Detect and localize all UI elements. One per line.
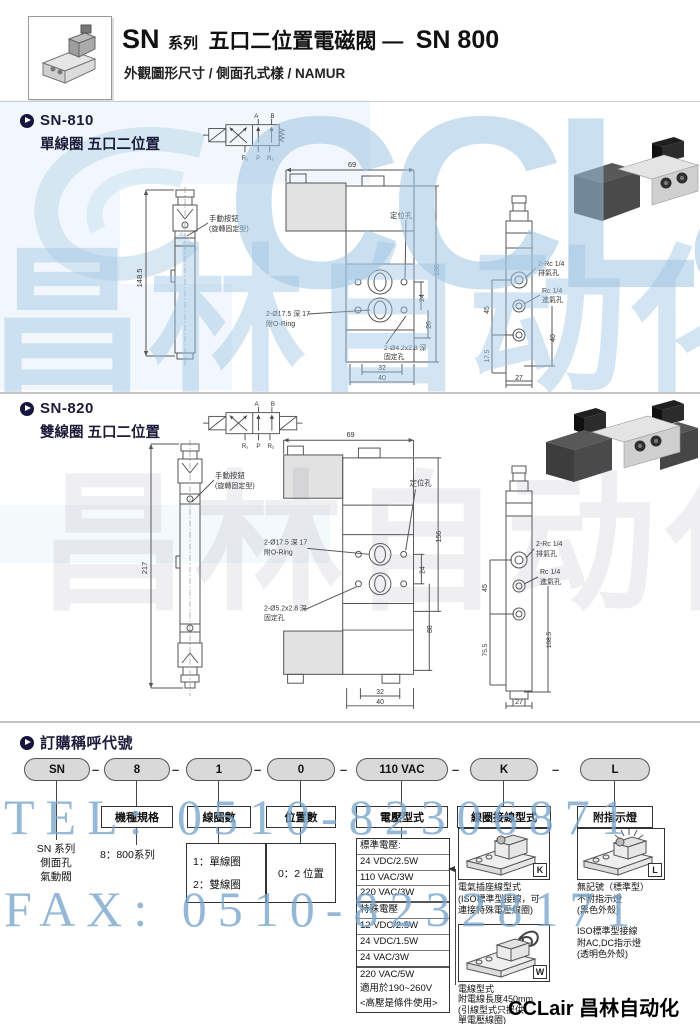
code-pill-voltage: 110 VAC [356,758,448,781]
intake-port-label2: 進氣孔 [540,577,561,586]
title-model: SN 800 [416,26,499,54]
port-r1-label: R₁ [242,155,249,162]
code-dash: – [452,762,459,777]
oring-label: 2-Ø17.5 深 17 [264,537,307,546]
indicator-l-caption1: 無記號（標準型） 不附指示燈 (黑色外殼) [577,882,673,917]
connector-line [56,779,57,840]
code-pill-coils: 1 [186,758,252,781]
coil-option: 2：雙線圈 [193,877,259,892]
col-header-coils: 線圈數 [187,806,251,828]
wiring-k-tag: K [533,863,547,877]
voltage-row: 24 VDC/2.5W [357,855,449,871]
code-dash: – [92,762,99,777]
voltage-row: 110 VAC/3W [357,871,449,887]
connector-line [401,779,402,806]
manual-button-label2: (旋轉固定型) [209,224,249,233]
sn820-heading: SN-820 [20,400,94,417]
sn810-side-dimension-drawing: 69 24 26 136 32 40 定位孔 2-Ø17.5 深 17 附O-R… [266,158,441,388]
code-pill-positions: 0 [267,758,335,781]
indicator-l-caption-line: (黑色外殼) [577,905,673,917]
sn810-desc: 單線圈 五口二位置 [40,133,160,154]
code-pill-light: L [580,758,650,781]
section-bullet-icon [20,736,34,750]
page-subtitle: 外觀圖形尺寸 / 側面孔式樣 / NAMUR [124,62,345,82]
connector-line [300,779,301,806]
voltage-options-box: 標準電壓: 24 VDC/2.5W 110 VAC/3W 220 VAC/3W … [356,838,450,1013]
indicator-l-image-box: L [577,828,665,880]
code-dash: – [552,762,559,777]
title-series-word: 系列 [168,35,198,52]
indicator-l-tag: L [648,863,662,877]
catalog-page: SN 系列 五口二位置電磁閥 — SN 800 外觀圖形尺寸 / 側面孔式樣 /… [0,0,700,1024]
connector-line [300,826,301,843]
code-dash: – [340,762,347,777]
code-pill-series: 8 [104,758,170,781]
wiring-k-image-box: K [458,828,550,880]
divider [0,101,700,102]
connector-line [218,779,219,806]
wiring-w-image-box: W [458,924,550,982]
sn820-product-photo [540,396,700,496]
voltage-row: <高壓是條件使用> [357,997,449,1012]
indicator-l-caption-line: 附AC,DC指示燈 [577,938,673,950]
port-a-label: A [254,113,259,120]
code-pill-wiring: K [470,758,538,781]
voltage-row: 24 VDC/1.5W [357,935,449,951]
indicator-l-caption-line: 不附指示燈 [577,894,673,906]
connector-line [614,779,615,806]
fixing-hole-label2: 固定孔 [384,352,405,361]
fixing-hole-label: 2-Ø4.2x2.8 深 [384,343,427,352]
indicator-l-caption-line: 無記號（標準型） [577,882,673,894]
dim-height: 217 [140,562,149,575]
spec-option-note: 8：800系列 [100,847,155,862]
dim-45: 45 [482,584,489,592]
ordering-heading-text: 訂購稱呼代號 [40,732,133,753]
connector-line [455,869,456,985]
dim-24: 24 [419,294,426,302]
exhaust-port-label: 2-Rc 1/4 [536,541,563,548]
dim-27: 27 [515,375,523,382]
dim-88: 88 [427,625,434,633]
section-bullet-icon [20,402,34,416]
dim-40: 40 [550,334,557,342]
divider [0,721,700,723]
intake-port-label: Rc 1/4 [542,288,562,295]
dim-26: 26 [426,321,433,329]
exhaust-port-label2: 排氣孔 [536,549,557,558]
indicator-l-caption-line: (透明色外殼) [577,949,673,961]
voltage-row: 220 VAC/3W [357,886,449,903]
title-series-code: SN [122,24,160,54]
dim-40: 40 [376,699,384,706]
sn820-model: SN-820 [40,400,94,417]
voltage-row: 標準電壓: [357,839,449,855]
voltage-row: 特殊電壓 [357,903,449,919]
port-a-label: A [254,401,259,408]
position-option: 0：2 位置 [278,866,324,881]
divider [0,392,700,394]
dim-27: 27 [515,699,523,706]
wiring-k-caption-line: 連接特殊電壓線圈) [458,905,558,917]
sn-series-note: SN 系列 側面孔 氣動閥 [18,842,94,885]
sn-series-note-line: SN 系列 [18,842,94,856]
dim-height: 148.5 [135,269,144,288]
dim-32: 32 [378,365,386,372]
intake-port-label2: 進氣孔 [542,295,563,304]
manual-button-label: 手動按鈕 [215,470,245,480]
connector-line [136,779,137,806]
voltage-row: 適用於190~260V [357,982,449,997]
sn-series-note-line: 氣動閥 [18,870,94,884]
wiring-k-caption: 電氣插座線型式 (ISO標準型接線，可 連接特殊電壓線圈) [458,882,558,917]
code-dash: – [254,762,261,777]
sn820-side-dimension-drawing: 69 24 88 156 32 40 定位孔 2-Ø17.5 深 17 附O-R… [264,426,446,721]
exhaust-port-label: 2-Rc 1/4 [538,261,565,268]
voltage-row: 24 VAC/3W [357,951,449,968]
connector-line [136,826,137,845]
manual-button-label: 手動按鈕 [209,213,239,223]
code-pill-sn: SN [24,758,90,781]
wiring-k-caption-line: 電氣插座線型式 [458,882,558,894]
sn810-front-view-drawing: 148.5 手動按鈕 (旋轉固定型) [130,186,265,376]
sn820-port-view-drawing: 2-Rc 1/4 排氣孔 Rc 1/4 進氣孔 45 75.5 108.5 27 [468,460,593,712]
manual-button-label2: (旋轉固定型) [215,481,255,490]
dim-136: 136 [434,264,441,276]
dim-45: 45 [484,306,491,314]
page-title: SN 系列 五口二位置電磁閥 — SN 800 [122,24,499,55]
dim-40: 40 [378,375,386,382]
port-p-label: P [256,155,260,162]
intake-port-label: Rc 1/4 [540,569,560,576]
sn810-product-photo [560,135,700,240]
wiring-k-caption-line: (ISO標準型接線，可 [458,894,558,906]
title-main: 五口二位置電磁閥 — [208,30,403,53]
coil-options-box: 1：單線圈 2：雙線圈 [186,843,266,903]
fixing-hole-label: 2-Ø5.2x2.8 深 [264,603,307,612]
port-b-label: B [270,113,274,120]
dim-32: 32 [376,689,384,696]
col-header-spec: 機種規格 [101,806,173,828]
indicator-l-caption2: ISO標準型接線 附AC,DC指示燈 (透明色外殼) [577,926,673,961]
dim-75-5: 75.5 [482,643,489,656]
col-header-voltage: 電壓型式 [356,806,448,828]
oring-label2: 附O-Ring [266,319,295,328]
voltage-row: 220 VAC/5W [357,968,449,983]
locating-hole-label: 定位孔 [390,210,413,220]
arrow-left-icon [448,866,455,872]
dim-24: 24 [419,566,426,574]
dim-width: 69 [348,160,356,169]
locating-hole-label: 定位孔 [410,478,433,487]
sn-series-note-line: 側面孔 [18,856,94,870]
sn810-model: SN-810 [40,112,94,129]
fixing-hole-label2: 固定孔 [264,613,285,622]
col-header-wiring: 線圈接線型式 [457,806,551,828]
code-dash: – [172,762,179,777]
wiring-w-tag: W [533,965,547,979]
section-bullet-icon [20,114,34,128]
coil-option: 1：單線圈 [193,854,259,869]
connector-line [218,826,219,843]
footer-brand-text: CCLair 昌林自动化 [508,992,679,1021]
oring-label: 2-Ø17.5 深 17 [266,309,310,318]
port-b-label: B [271,401,275,408]
sn810-heading: SN-810 [20,112,94,129]
dim-17-5: 17.5 [484,349,491,362]
indicator-l-caption-line: ISO標準型接線 [577,926,673,938]
product-thumbnail-drawing [29,17,109,97]
product-thumbnail [28,16,112,100]
ordering-heading: 訂購稱呼代號 [20,732,133,753]
col-header-positions: 位置數 [266,806,336,828]
dim-108-5: 108.5 [546,631,553,648]
sn810-valve-symbol: A B R₁ P R₂ [203,112,303,164]
oring-label2: 附O-Ring [264,547,293,556]
sn820-front-view-drawing: 217 手動按鈕 (旋轉固定型) [135,438,270,708]
col-header-light: 附指示燈 [577,806,653,828]
connector-line [503,779,504,806]
exhaust-port-label2: 排氣孔 [538,268,559,277]
dim-156: 156 [436,531,443,543]
dim-width: 69 [346,430,354,439]
position-option-box: 0：2 位置 [266,843,336,903]
voltage-row: 12 VDC/2.5W [357,919,449,935]
